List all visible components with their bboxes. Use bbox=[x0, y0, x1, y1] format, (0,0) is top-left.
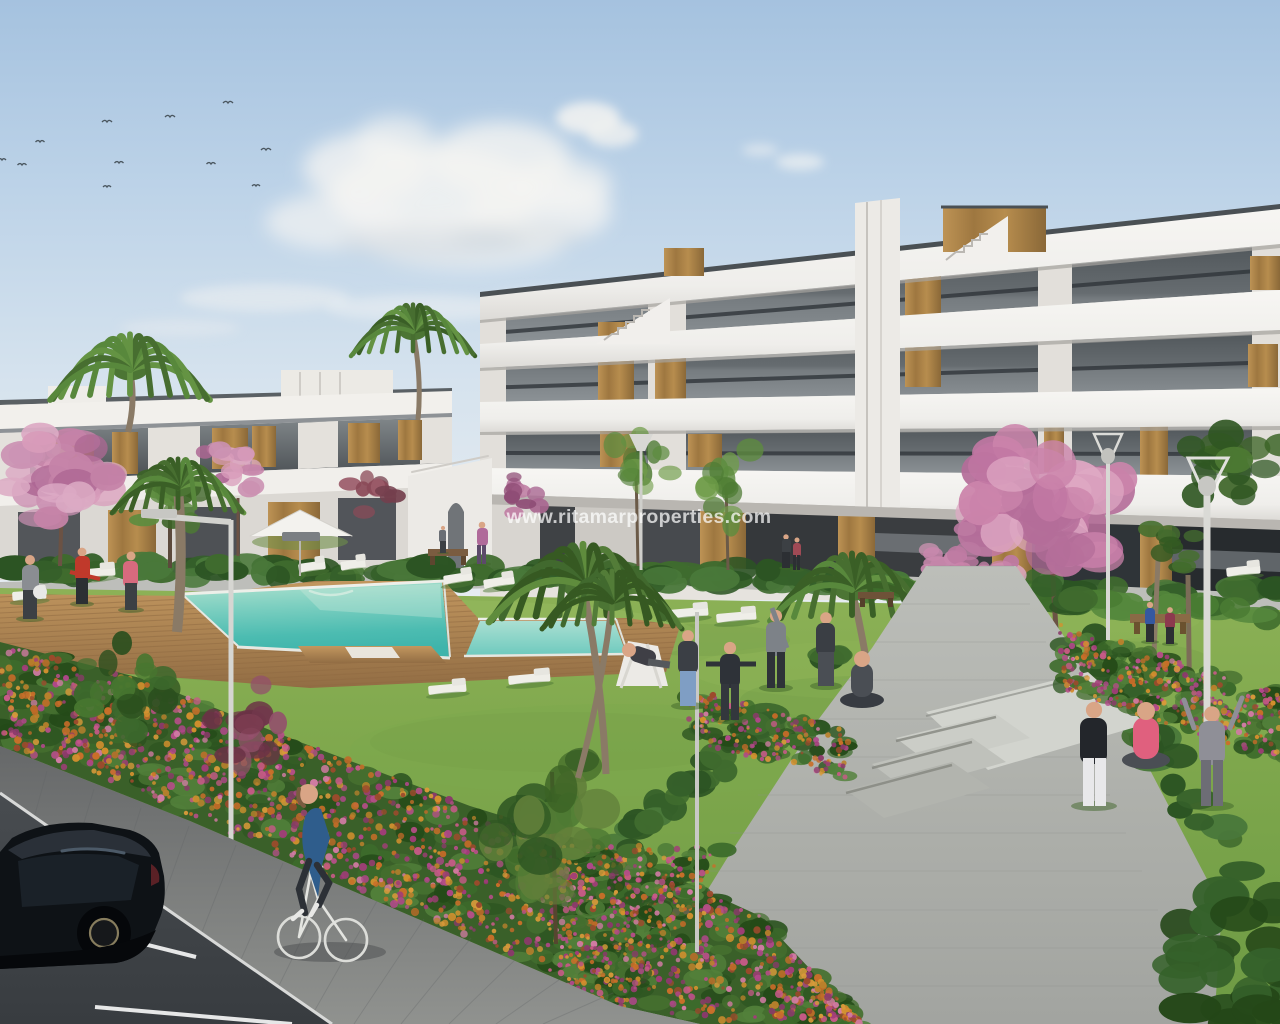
svg-text:www.ritamarproperties.com: www.ritamarproperties.com bbox=[506, 506, 772, 528]
